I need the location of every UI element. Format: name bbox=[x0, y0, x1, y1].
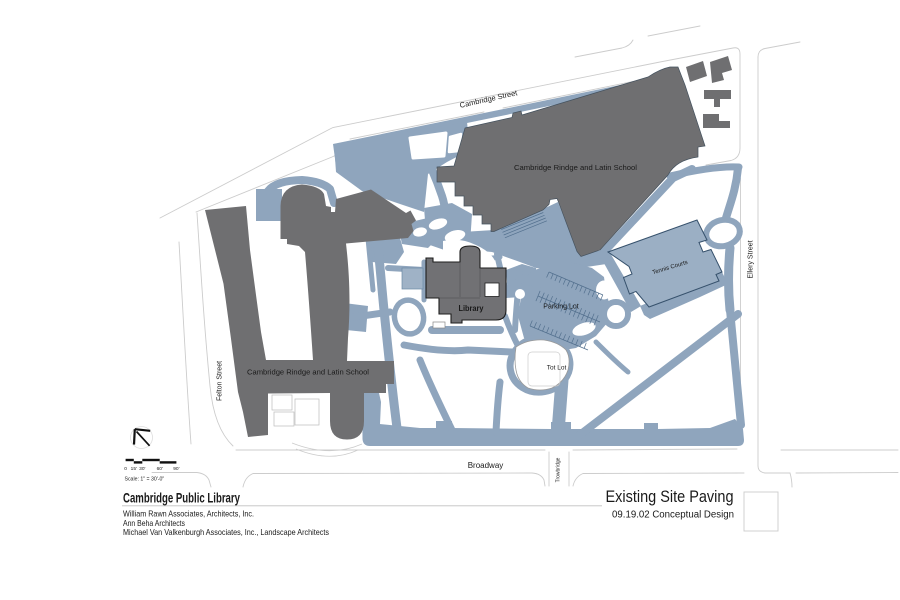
svg-text:Cambridge Rindge and Latin Sch: Cambridge Rindge and Latin School bbox=[247, 370, 369, 377]
svg-text:09.19.02 Conceptual Design: 09.19.02 Conceptual Design bbox=[612, 510, 734, 521]
svg-text:Cambridge Rindge and Latin Sch: Cambridge Rindge and Latin School bbox=[514, 163, 637, 172]
svg-text:Cambridge Public Library: Cambridge Public Library bbox=[123, 491, 240, 506]
svg-text:Felton Street: Felton Street bbox=[217, 361, 224, 401]
svg-text:Michael Van Valkenburgh Associ: Michael Van Valkenburgh Associates, Inc.… bbox=[123, 527, 329, 537]
svg-text:Ellery Street: Ellery Street bbox=[748, 240, 755, 278]
svg-text:60': 60' bbox=[157, 466, 163, 472]
svg-text:Parking Lot: Parking Lot bbox=[543, 304, 578, 311]
svg-text:Broadway: Broadway bbox=[468, 461, 504, 470]
svg-text:0: 0 bbox=[124, 466, 127, 472]
svg-text:15': 15' bbox=[131, 466, 137, 472]
svg-text:Library: Library bbox=[459, 303, 484, 313]
svg-text:30': 30' bbox=[139, 466, 145, 472]
svg-text:90': 90' bbox=[173, 466, 179, 472]
svg-text:Existing Site Paving: Existing Site Paving bbox=[606, 487, 734, 506]
svg-text:Tot Lot: Tot Lot bbox=[547, 365, 567, 372]
svg-text:Trowbridge: Trowbridge bbox=[556, 457, 562, 482]
svg-text:Scale: 1" = 30'-0": Scale: 1" = 30'-0" bbox=[125, 477, 165, 483]
